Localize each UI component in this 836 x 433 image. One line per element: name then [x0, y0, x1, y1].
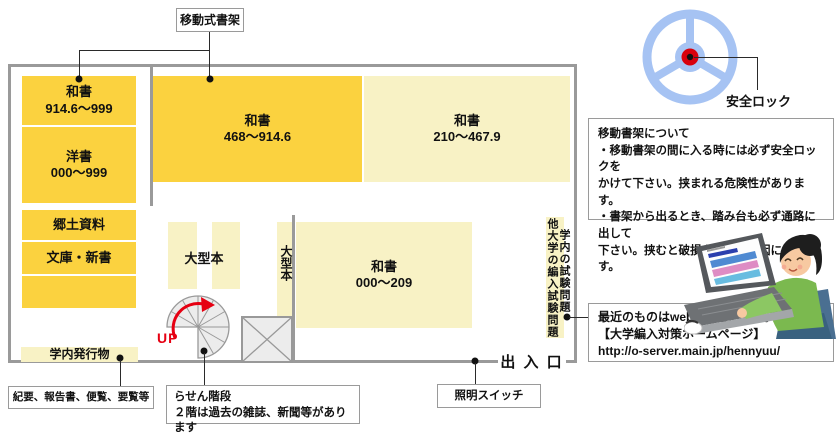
movable-shelf-callout: 移動式書架	[176, 8, 244, 32]
block-bunko-shinsho: 文庫・新書	[22, 242, 136, 274]
block-unlabeled-shelf	[22, 276, 136, 308]
connector-line	[120, 360, 121, 386]
connector-line	[569, 317, 588, 318]
safety-lock-label: 安全ロック	[726, 91, 791, 110]
connector-line	[475, 363, 476, 384]
block-yosho: 洋書 000～999	[22, 127, 136, 203]
connector-dot	[207, 76, 214, 83]
block-range: 000～999	[51, 165, 107, 181]
person-at-computer-illustration	[684, 227, 836, 343]
block-range: 210～467.9	[433, 129, 500, 145]
block-title: 和書	[66, 84, 92, 100]
crossed-box	[241, 316, 293, 363]
shelf-info-callout: 移動書架について ・移動書架の間に入る時には必ず安全ロックを かけて下さい。挟ま…	[588, 118, 834, 220]
connector-line	[757, 57, 758, 90]
connector-line	[79, 50, 210, 51]
up-label: UP	[157, 330, 178, 346]
block-kyodo-shiryo: 郷土資料	[22, 210, 136, 240]
connector-line	[694, 57, 757, 58]
block-range: 914.6～999	[45, 101, 112, 117]
block-washo-210: 和書 210～467.9	[364, 76, 570, 182]
library-floor-map: 和書 914.6～999 洋書 000～999 郷土資料 文庫・新書 学内発行物…	[0, 0, 836, 433]
spiral-staircase-callout: らせん階段 ２階は過去の雑誌、新聞等があります	[166, 385, 360, 424]
block-washo-914: 和書 914.6～999	[22, 76, 136, 125]
block-title: 郷土資料	[53, 217, 105, 233]
block-title: 洋書	[66, 149, 92, 165]
kiyou-callout: 紀要、報告書、便覧、要覧等	[8, 386, 154, 409]
block-title: 文庫・新書	[46, 250, 111, 266]
block-title: 和書	[244, 113, 270, 129]
connector-line	[204, 353, 205, 385]
entrance-label: 出 入 口	[498, 353, 566, 372]
block-washo-000: 和書 000～209	[296, 222, 472, 328]
spiral-staircase	[165, 294, 231, 362]
block-title: 学内発行物	[49, 347, 109, 362]
ogatabon-vertical-label: 大型本	[278, 245, 295, 281]
block-range: 000～209	[356, 275, 412, 291]
exam-questions-other-univ-label: 他大学の編入試験問題	[544, 218, 560, 338]
block-title: 和書	[371, 259, 397, 275]
block-range: 468～914.6	[224, 129, 291, 145]
block-title: 和書	[454, 113, 480, 129]
block-washo-468: 和書 468～914.6	[153, 76, 362, 182]
connector-dot	[76, 76, 83, 83]
light-switch-callout: 照明スイッチ	[437, 384, 541, 408]
ogatabon-label: 大型本	[167, 248, 241, 267]
connector-line	[209, 32, 210, 79]
